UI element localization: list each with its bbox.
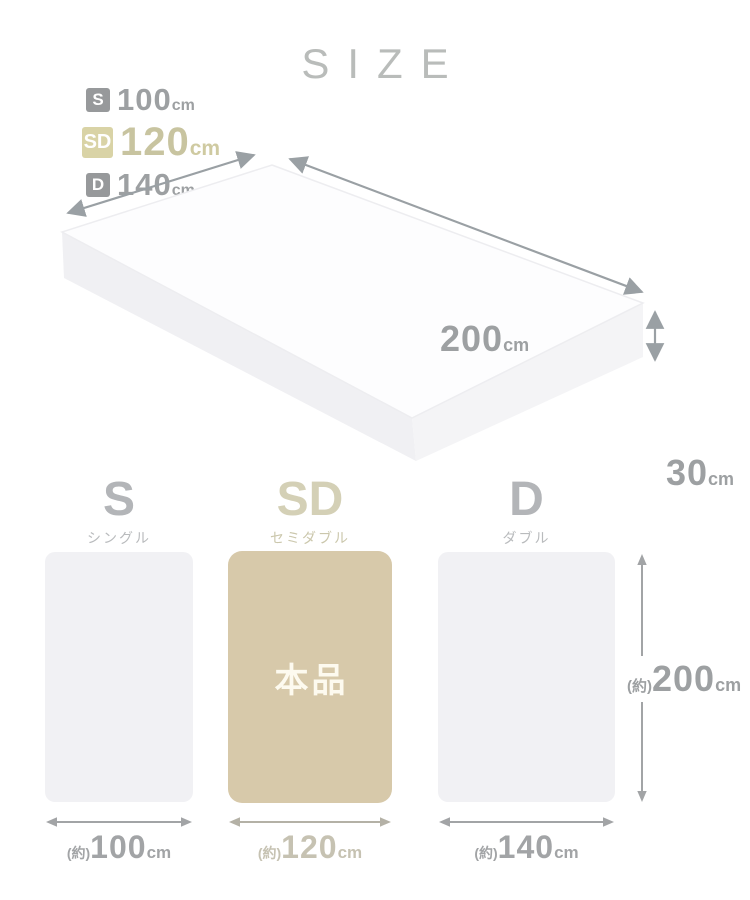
- semidouble-approx: (約): [258, 843, 281, 863]
- semidouble-bottom-value: 120: [281, 829, 337, 866]
- double-bottom-unit: cm: [554, 843, 579, 863]
- single-name: シングル: [45, 528, 193, 548]
- semidouble-name: セミダブル: [228, 528, 392, 548]
- height-value: 30: [666, 452, 708, 494]
- double-size-rect: [438, 552, 615, 802]
- length-value: 200: [440, 318, 503, 360]
- length-bottom-unit: cm: [715, 675, 741, 696]
- mattress-3d-drawing: [0, 140, 750, 470]
- single-width-label: (約) 100 cm: [45, 829, 193, 866]
- double-width-arrow-icon: [438, 815, 615, 829]
- double-approx: (約): [474, 843, 497, 863]
- single-bottom-value: 100: [90, 829, 146, 866]
- semidouble-bottom-unit: cm: [338, 843, 363, 863]
- length-unit: cm: [503, 335, 529, 356]
- single-width-unit: cm: [172, 97, 195, 115]
- mattress-illustration: 200 cm 30 cm: [0, 140, 750, 470]
- single-size-rect: [45, 552, 193, 802]
- single-code: S: [45, 476, 193, 524]
- double-bottom-value: 140: [498, 829, 554, 866]
- legend-row-single: S 100 cm: [86, 82, 220, 118]
- height-dimension-label: 30 cm: [666, 452, 734, 494]
- single-bottom-unit: cm: [147, 843, 172, 863]
- length-approx: (約): [627, 675, 652, 696]
- semidouble-code: SD: [228, 476, 392, 524]
- length-dimension-label-bottom: (約) 200 cm: [627, 656, 741, 702]
- column-header-semidouble: SD セミダブル: [228, 476, 392, 548]
- page-title: SIZE: [0, 40, 750, 88]
- height-unit: cm: [708, 469, 734, 490]
- semidouble-width-label: (約) 120 cm: [228, 829, 392, 866]
- semidouble-size-rect: 本品: [228, 551, 392, 803]
- column-header-double: D ダブル: [438, 476, 615, 548]
- double-width-label: (約) 140 cm: [438, 829, 615, 866]
- size-infographic: SIZE S 100 cm SD 120 cm D 140 cm: [0, 0, 750, 900]
- length-bottom-value: 200: [652, 658, 715, 700]
- single-width-arrow-icon: [45, 815, 193, 829]
- single-width-value: 100: [117, 82, 172, 118]
- semidouble-width-arrow-icon: [228, 815, 392, 829]
- this-product-tag: 本品: [272, 653, 349, 702]
- double-name: ダブル: [438, 528, 615, 548]
- column-header-single: S シングル: [45, 476, 193, 548]
- single-approx: (約): [67, 843, 90, 863]
- single-badge: S: [86, 88, 110, 112]
- double-code: D: [438, 476, 615, 524]
- length-dimension-label: 200 cm: [440, 318, 529, 360]
